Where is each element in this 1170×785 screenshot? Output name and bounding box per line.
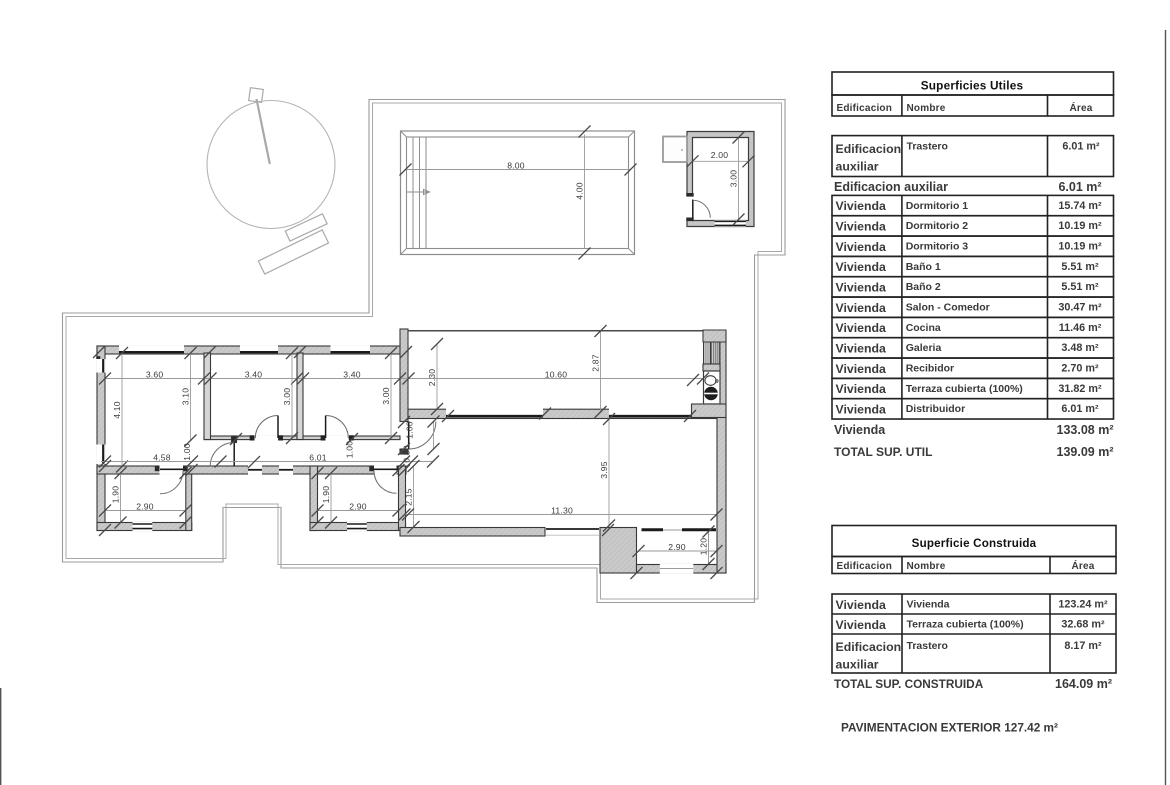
svg-text:2.00: 2.00 [711,150,729,160]
svg-text:TOTAL SUP. UTIL: TOTAL SUP. UTIL [834,445,932,459]
svg-text:3.10: 3.10 [181,388,191,406]
svg-text:10.19 m²: 10.19 m² [1058,241,1102,253]
svg-text:Dormitorio 1: Dormitorio 1 [906,200,969,212]
svg-text:Trastero: Trastero [907,141,948,153]
svg-text:1.20: 1.20 [699,538,709,556]
svg-text:15.74 m²: 15.74 m² [1058,200,1102,212]
svg-text:3.40: 3.40 [343,370,361,380]
svg-text:2.15: 2.15 [404,488,414,506]
svg-text:Vivienda: Vivienda [836,260,887,274]
svg-text:Vivienda: Vivienda [836,281,887,295]
svg-text:Área: Área [1069,101,1092,114]
svg-text:1.90: 1.90 [321,486,331,504]
svg-text:3.60: 3.60 [146,370,164,380]
svg-text:2.90: 2.90 [349,502,367,512]
svg-text:Superficies Utiles: Superficies Utiles [921,79,1024,93]
svg-text:Vivienda: Vivienda [834,423,886,437]
svg-text:PAVIMENTACION EXTERIOR 127.42: PAVIMENTACION EXTERIOR 127.42 m² [841,721,1058,735]
svg-text:164.09 m²: 164.09 m² [1055,677,1112,691]
svg-text:TOTAL SUP. CONSTRUIDA: TOTAL SUP. CONSTRUIDA [834,677,984,691]
svg-text:Galeria: Galeria [906,342,942,354]
svg-text:Baño 1: Baño 1 [906,261,941,273]
svg-text:Vivienda: Vivienda [836,220,887,234]
svg-text:10.60: 10.60 [545,370,568,380]
svg-text:Salon - Comedor: Salon - Comedor [906,302,990,314]
svg-text:Trastero: Trastero [907,640,948,652]
svg-text:3.40: 3.40 [245,370,263,380]
svg-text:3.48 m²: 3.48 m² [1061,342,1099,354]
svg-text:1.00: 1.00 [405,421,415,439]
svg-text:Vivienda: Vivienda [836,598,887,612]
svg-text:1.00: 1.00 [345,441,355,459]
svg-text:4.10: 4.10 [112,401,122,419]
svg-text:Terraza cubierta (100%): Terraza cubierta (100%) [906,383,1023,395]
svg-text:1.00: 1.00 [182,443,192,461]
svg-text:123.24 m²: 123.24 m² [1058,599,1108,611]
svg-text:Vivienda: Vivienda [836,382,887,396]
svg-text:3.00: 3.00 [282,388,292,406]
svg-text:1.90: 1.90 [111,486,121,504]
svg-text:8.00: 8.00 [507,161,525,171]
svg-text:Vivienda: Vivienda [907,599,950,611]
svg-text:Vivienda: Vivienda [836,301,887,315]
svg-text:5.51 m²: 5.51 m² [1061,281,1099,293]
svg-text:4.00: 4.00 [575,182,585,200]
svg-text:Edificacion auxiliar: Edificacion auxiliar [834,180,948,194]
svg-text:Área: Área [1071,559,1094,572]
svg-text:Vivienda: Vivienda [836,342,887,356]
svg-text:2.70 m²: 2.70 m² [1061,363,1099,375]
svg-text:2.90: 2.90 [668,542,686,552]
svg-text:auxiliar: auxiliar [836,658,879,672]
svg-text:Distribuidor: Distribuidor [906,403,966,415]
svg-text:3.00: 3.00 [381,387,391,405]
svg-text:8.17 m²: 8.17 m² [1064,640,1102,652]
svg-text:31.82 m²: 31.82 m² [1058,383,1102,395]
svg-text:32.68 m²: 32.68 m² [1061,619,1105,631]
svg-text:10.19 m²: 10.19 m² [1058,220,1102,232]
svg-text:Cocina: Cocina [906,322,941,334]
svg-text:Vivienda: Vivienda [836,403,887,417]
svg-text:6.01 m²: 6.01 m² [1058,180,1101,194]
svg-text:Terraza cubierta (100%): Terraza cubierta (100%) [907,619,1024,631]
svg-text:Edificacion: Edificacion [836,640,902,654]
svg-text:30.47 m²: 30.47 m² [1058,302,1102,314]
svg-text:2.90: 2.90 [136,502,154,512]
svg-text:auxiliar: auxiliar [836,160,879,174]
svg-text:Superficie Construida: Superficie Construida [912,537,1037,550]
svg-text:11.30: 11.30 [551,506,573,516]
svg-text:Recibidor: Recibidor [906,363,954,375]
svg-text:Vivienda: Vivienda [836,199,887,213]
svg-text:Edificacion: Edificacion [837,561,893,572]
svg-text:6.01 m²: 6.01 m² [1062,141,1100,153]
svg-text:3.95: 3.95 [599,461,609,479]
svg-text:2.30: 2.30 [427,369,437,387]
svg-text:139.09 m²: 139.09 m² [1057,445,1114,459]
svg-text:133.08 m²: 133.08 m² [1057,423,1114,437]
svg-text:Vivienda: Vivienda [836,362,887,376]
svg-text:Vivienda: Vivienda [836,321,887,335]
svg-text:6.01: 6.01 [309,453,327,463]
svg-text:4.58: 4.58 [153,453,171,463]
svg-text:Dormitorio 3: Dormitorio 3 [906,241,969,253]
svg-text:Vivienda: Vivienda [836,618,887,632]
svg-text:Dormitorio 2: Dormitorio 2 [906,220,969,232]
svg-text:5.51 m²: 5.51 m² [1061,261,1099,273]
svg-text:Edificacion: Edificacion [837,103,893,114]
svg-text:Vivienda: Vivienda [836,240,887,254]
svg-text:6.01 m²: 6.01 m² [1061,403,1099,415]
svg-text:Nombre: Nombre [907,103,946,114]
svg-text:11.46 m²: 11.46 m² [1059,322,1102,334]
svg-text:Baño 2: Baño 2 [906,281,941,293]
svg-text:0.80: 0.80 [402,445,412,463]
svg-text:2.87: 2.87 [591,354,601,372]
svg-text:Nombre: Nombre [907,561,946,572]
svg-text:3.00: 3.00 [729,170,739,188]
svg-text:Edificacion: Edificacion [836,142,902,156]
